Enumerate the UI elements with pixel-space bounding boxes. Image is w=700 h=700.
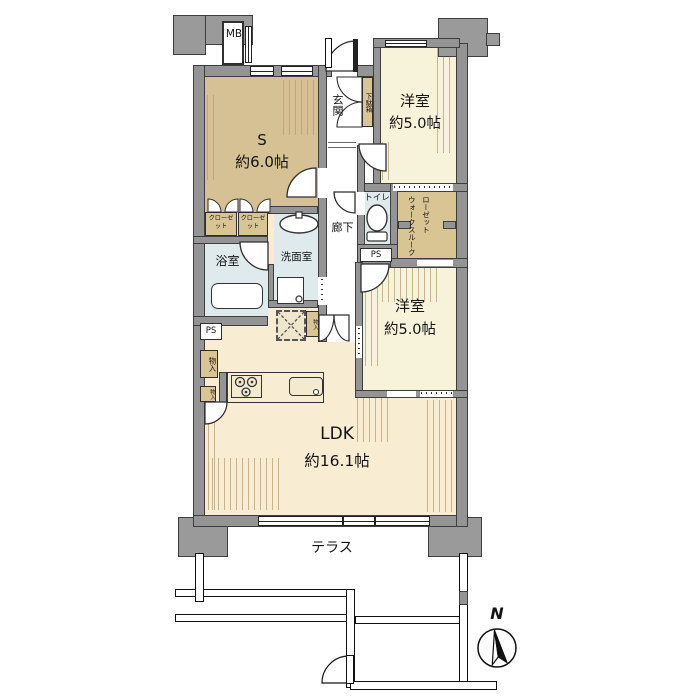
window	[343, 516, 375, 526]
wall	[193, 65, 205, 527]
service-room-size: 約6.0帖	[217, 153, 307, 172]
porch-wall	[325, 38, 332, 68]
toilet-label: トイレ	[362, 193, 392, 204]
sliding-door-ticks	[358, 328, 360, 356]
service-room-name: S	[225, 131, 299, 150]
pipe-space-2-label: PS	[201, 326, 221, 337]
wall	[373, 38, 381, 190]
bedroom-mid-size: 約5.0帖	[373, 321, 447, 339]
pipe-space-1: PS	[360, 248, 392, 262]
entrance-label: 玄関	[331, 88, 345, 122]
storage-2-label: 物入	[200, 387, 216, 401]
closet-2-label: クローゼット	[239, 215, 267, 231]
kitchen-sink-icon	[289, 377, 323, 396]
stove-icon	[231, 375, 262, 398]
compass-north-label: N	[486, 604, 508, 624]
terrace-fence	[350, 681, 497, 690]
window	[385, 40, 427, 47]
door-opening	[387, 391, 416, 397]
terrace-gate-arc	[322, 656, 349, 683]
washing-machine-pan	[277, 277, 304, 304]
terrace-label: テラス	[302, 540, 362, 558]
floor-plan: MB 下駄箱 クローゼット クローゼット PS PS 物入 物入 物入	[0, 0, 700, 700]
sliding-door-ticks	[421, 392, 452, 394]
walk-through-closet-label: ウォークスルークローゼット	[404, 196, 450, 256]
window	[258, 516, 343, 526]
entrance-step	[328, 142, 356, 148]
pipe-space-1-label: PS	[361, 250, 391, 261]
closet-opening-ticks	[394, 186, 452, 188]
corridor-label: 廊下	[329, 221, 356, 235]
closet-1: クローゼット	[205, 212, 237, 236]
bedroom-top-name: 洋室	[385, 92, 445, 111]
closet-2: クローゼット	[238, 212, 268, 236]
ldk-size: 約16.1帖	[293, 452, 381, 471]
fence-post	[459, 591, 468, 605]
corridor-floor	[327, 145, 357, 342]
window	[375, 516, 430, 526]
bathtub	[211, 283, 263, 309]
terrace-fence	[459, 553, 468, 689]
meter-box-label: MB	[224, 26, 244, 44]
shoe-cabinet-label: 下駄箱	[362, 80, 373, 126]
window	[250, 66, 274, 76]
floor-hatch	[427, 400, 454, 512]
pipe-space-2: PS	[200, 323, 222, 340]
ldk-name: LDK	[300, 424, 374, 445]
bedroom-mid-name: 洋室	[380, 297, 440, 316]
wall	[268, 264, 274, 302]
compass-icon	[478, 629, 516, 667]
wall	[456, 43, 468, 527]
terrace-fence	[175, 614, 349, 622]
storage-3-label: 物入	[306, 313, 319, 335]
window	[281, 66, 313, 76]
meter-box: MB	[222, 21, 244, 65]
storage-1-label: 物入	[200, 352, 218, 376]
terrace-gate-leaf	[346, 655, 354, 684]
bedroom-top-size: 約5.0帖	[378, 115, 452, 133]
door-opening	[318, 168, 327, 198]
sliding-door-ticks	[321, 279, 323, 303]
floor-access-hatch	[276, 310, 306, 341]
window	[245, 26, 252, 63]
fence-post	[195, 553, 204, 602]
floor-hatch	[382, 142, 394, 180]
floor-hatch	[212, 458, 280, 510]
pillar-block	[173, 15, 206, 55]
terrace-fence	[355, 616, 465, 624]
wall	[268, 206, 318, 214]
pillar-block	[486, 33, 500, 46]
wall	[193, 236, 268, 244]
bathroom-label: 浴室	[211, 254, 244, 269]
closet-opening	[417, 260, 453, 266]
washroom-label: 洗面室	[276, 251, 317, 264]
closet-1-label: クローゼット	[206, 215, 236, 231]
floor-hatch	[365, 268, 380, 366]
